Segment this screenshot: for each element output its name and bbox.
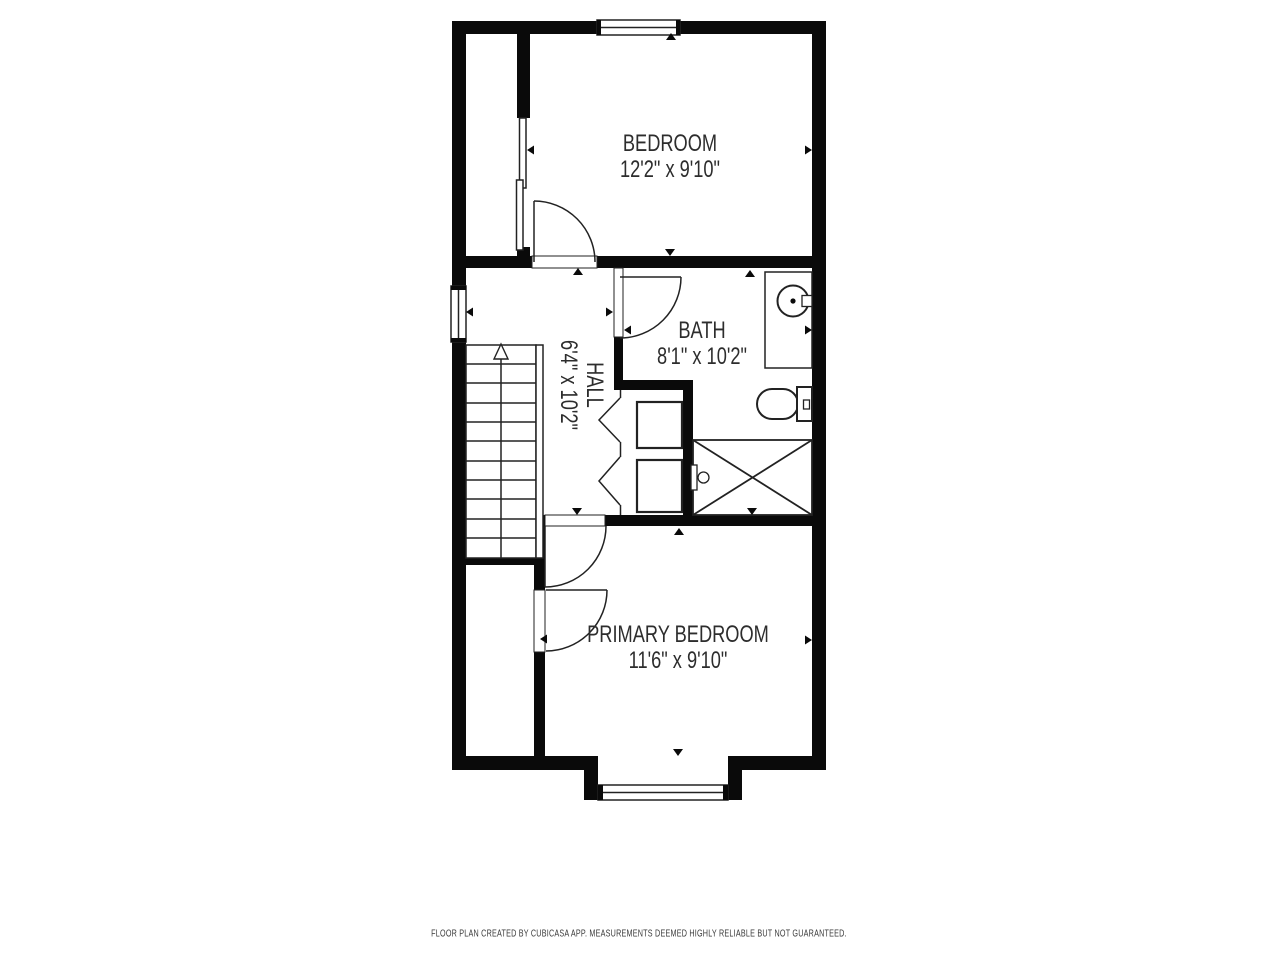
hall-dimensions: 6'4" x 10'2" [555, 340, 581, 430]
arrow-down-bay-window [673, 749, 683, 756]
arrow-right-bedroom-east [805, 146, 812, 155]
bedroom-south-wall-right [597, 256, 812, 268]
top-wall-right [680, 21, 826, 34]
top-window [597, 20, 680, 35]
closet-door-opening [534, 590, 545, 652]
bedroom-dimensions: 12'2" x 9'10" [620, 157, 720, 183]
arrow-down-hall-south [572, 508, 582, 515]
primary-bedroom-door-opening [545, 515, 605, 526]
arrow-down-bath-south [747, 508, 757, 515]
bedroom-door-opening [532, 256, 597, 268]
shower [691, 440, 812, 515]
left-wall-upper [452, 21, 466, 286]
bay-wall-left [584, 756, 598, 800]
closet-north-wall [614, 380, 693, 390]
bay-wall-right [728, 756, 742, 800]
arrow-up-bedroom-door [573, 268, 583, 275]
bath-name: BATH [657, 318, 747, 344]
closet-east-wall [683, 390, 693, 515]
arrow-down-bedroom-south [665, 249, 675, 256]
primary-bedroom-door [545, 526, 606, 587]
primary-bedroom-name: PRIMARY BEDROOM [587, 622, 769, 648]
arrow-right-primary-east [805, 636, 812, 645]
hall-label: HALL 6'4" x 10'2" [555, 340, 607, 430]
bath-fixtures [691, 272, 812, 515]
bedroom-name: BEDROOM [620, 131, 720, 157]
shower-valve [691, 465, 709, 490]
arrow-up-primary-north [674, 528, 684, 535]
right-wall [812, 21, 826, 770]
bath-dimensions: 8'1" x 10'2" [657, 344, 747, 370]
hall-south-wall-right [605, 515, 812, 526]
floor-plan-page: BEDROOM 12'2" x 9'10" HALL 6'4" x 10'2" … [0, 0, 1280, 960]
bedroom-west-wall [517, 21, 530, 118]
toilet [757, 387, 812, 421]
bottom-wall-left [452, 756, 598, 770]
bay-window [598, 785, 728, 800]
primary-bedroom-label: PRIMARY BEDROOM 11'6" x 9'10" [587, 622, 769, 674]
footer-disclaimer: FLOOR PLAN CREATED BY CUBICASA APP. MEAS… [431, 929, 847, 940]
bottom-wall-right [728, 756, 826, 770]
closet-shelves [637, 402, 682, 512]
stairs [466, 344, 543, 558]
door-thresholds [532, 256, 623, 652]
arrow-left-bedroom-west [527, 146, 534, 155]
bath-door-opening [614, 268, 623, 337]
closet-strip-wall-lower [534, 652, 545, 756]
stair-railing [536, 345, 543, 558]
hall-name: HALL [581, 340, 607, 430]
bedroom-label: BEDROOM 12'2" x 9'10" [620, 131, 720, 183]
bedroom-door [534, 201, 595, 262]
bedroom-south-wall-left [452, 256, 532, 268]
primary-bedroom-dimensions: 11'6" x 9'10" [587, 648, 769, 674]
stairwell-railing-glass [517, 118, 527, 250]
arrow-left-hall-window [466, 308, 473, 317]
arrow-right-hall-east [606, 308, 613, 317]
arrow-up-bath-north [745, 270, 755, 277]
bath-label: BATH 8'1" x 10'2" [657, 318, 747, 370]
hall-window [451, 286, 466, 342]
arrow-left-bath-west [624, 326, 631, 335]
